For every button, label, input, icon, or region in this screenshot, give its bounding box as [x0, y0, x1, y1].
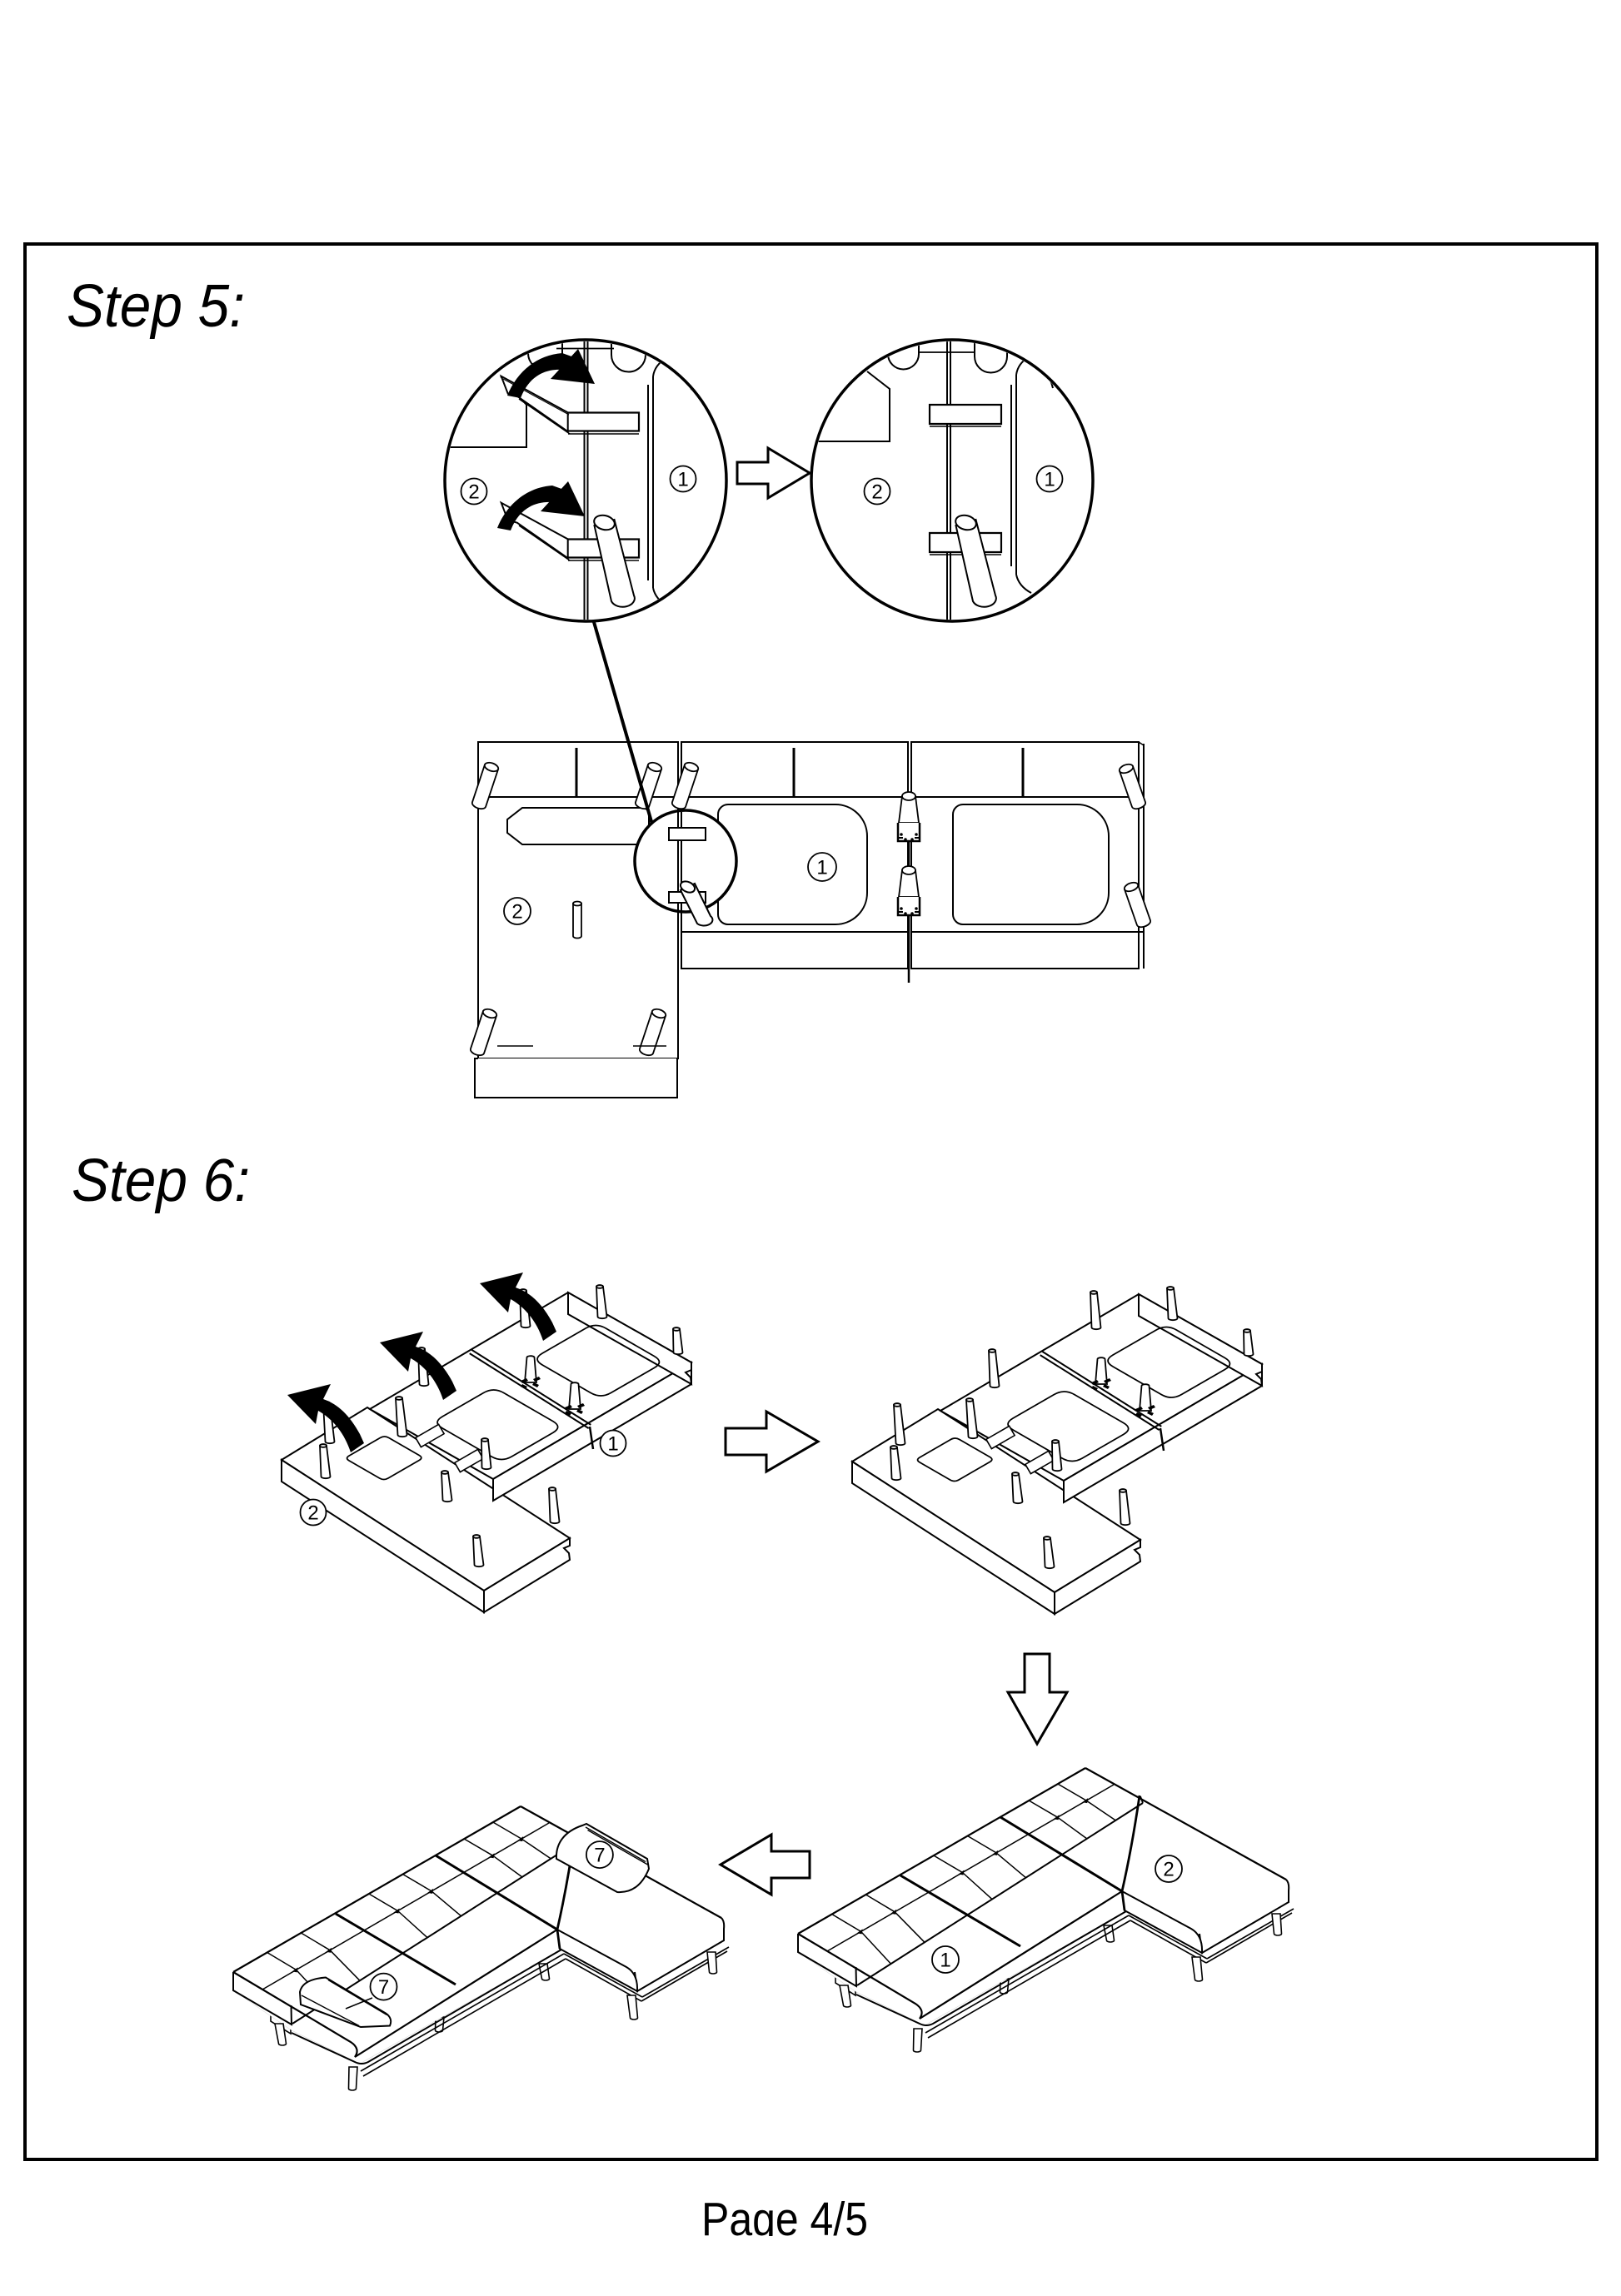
svg-text:1: 1	[816, 856, 827, 879]
svg-text:2: 2	[307, 1502, 318, 1524]
svg-text:Step 5:: Step 5:	[67, 273, 245, 340]
svg-text:7: 7	[378, 1976, 389, 1999]
svg-text:2: 2	[511, 900, 522, 923]
svg-text:2: 2	[871, 481, 882, 503]
svg-text:1: 1	[1044, 468, 1055, 491]
svg-text:2: 2	[1163, 1858, 1174, 1880]
svg-text:1: 1	[607, 1432, 618, 1455]
svg-text:1: 1	[940, 1949, 950, 1971]
svg-text:7: 7	[594, 1845, 605, 1867]
svg-text:2: 2	[468, 481, 479, 503]
svg-text:Step 6:: Step 6:	[72, 1148, 250, 1214]
svg-text:1: 1	[677, 468, 688, 491]
